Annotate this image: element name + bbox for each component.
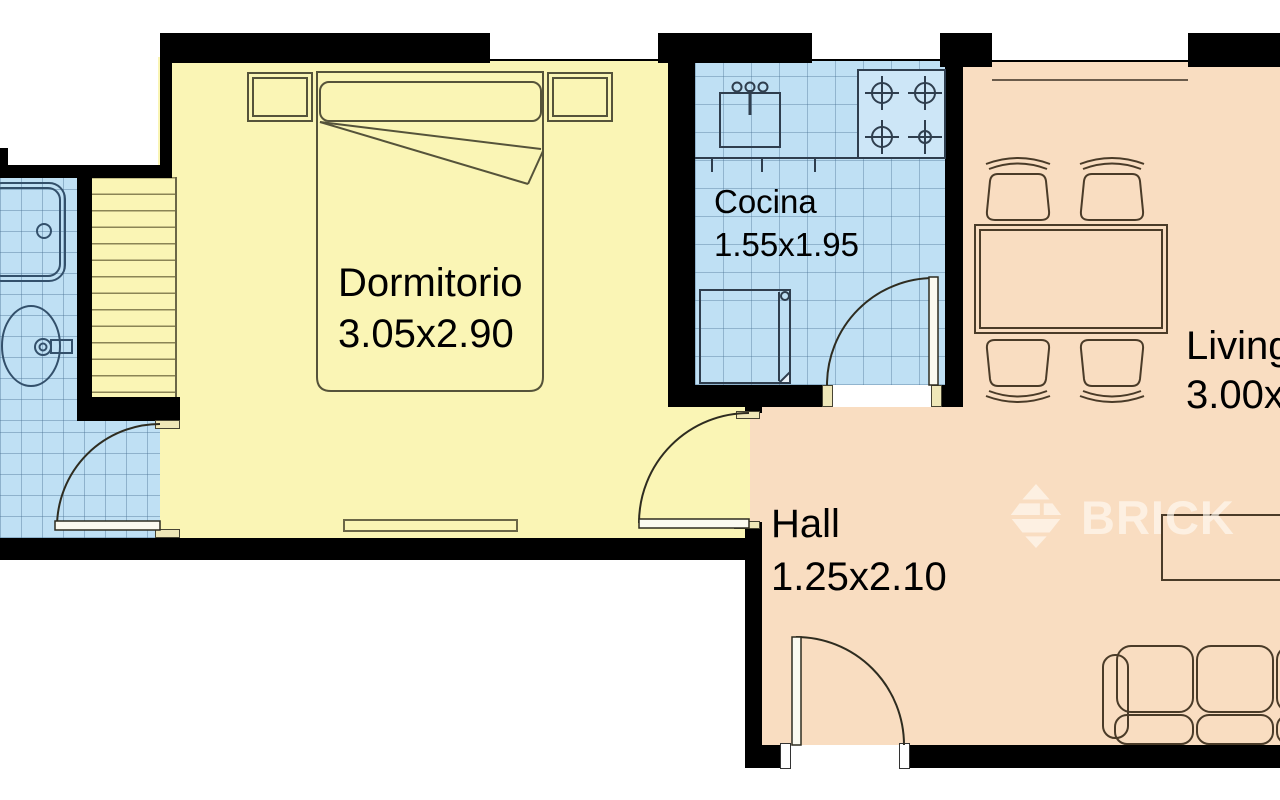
brick-diamond-icon [1003,482,1069,552]
hall-label-block: Hall 1.25x2.10 [771,498,947,604]
brick-watermark: BRICK [1003,482,1235,552]
wall-bottom-left [0,538,762,560]
kitchen-label-block: Cocina 1.55x1.95 [714,180,859,266]
bedroom-label: Dormitorio [338,258,522,309]
bedroom-floor-nook [668,407,750,538]
kitchen-dims: 1.55x1.95 [714,223,859,266]
bedroom-window [490,33,658,61]
living-label: Living [1186,322,1280,371]
kitchen-door-jamb-right [931,385,942,407]
living-dims: 3.00x [1186,371,1280,420]
wall-kitchen-right [945,57,963,407]
kitchen-label: Cocina [714,180,859,223]
wall-bathroom-top [0,165,172,178]
kitchen-window [812,33,940,61]
entrance-door-jamb-left [780,743,791,769]
bathroom-floor [0,178,77,421]
hall-dims: 1.25x2.10 [771,551,947,604]
hall-label: Hall [771,498,947,551]
closet [92,177,177,397]
wall-bedroom-left [160,33,172,178]
brick-logo-text: BRICK [1081,494,1235,541]
kitchen-door-jamb-left [822,385,833,407]
living-label-block: Living 3.00x [1186,322,1280,420]
wall-kitchen-bottom-left [668,385,827,407]
bedroom-door-jamb-bottom [734,521,760,529]
bedroom-door-jamb-top [736,411,760,419]
entrance-opening [782,745,908,768]
bedroom-radiator [343,519,518,532]
bedroom-dims: 3.05x2.90 [338,309,522,360]
floor-plan: Dormitorio 3.05x2.90 Cocina 1.55x1.95 Ha… [0,0,1280,800]
wall-edge-sliver [0,148,8,178]
wall-kitchen-left [668,57,695,407]
living-window-sill [992,79,1188,81]
wall-closet-bottom [77,397,180,421]
wall-closet-left [77,178,92,421]
bathroom-door-jamb-bottom [155,529,180,538]
bathroom-door-jamb-top [155,420,180,429]
wall-top-bedroom [160,33,490,63]
bedroom-label-block: Dormitorio 3.05x2.90 [338,258,522,360]
wall-top-living-right [1188,33,1280,67]
entrance-door-jamb-right [899,743,910,769]
bathroom-floor-lower [0,421,160,538]
living-window [992,33,1188,62]
